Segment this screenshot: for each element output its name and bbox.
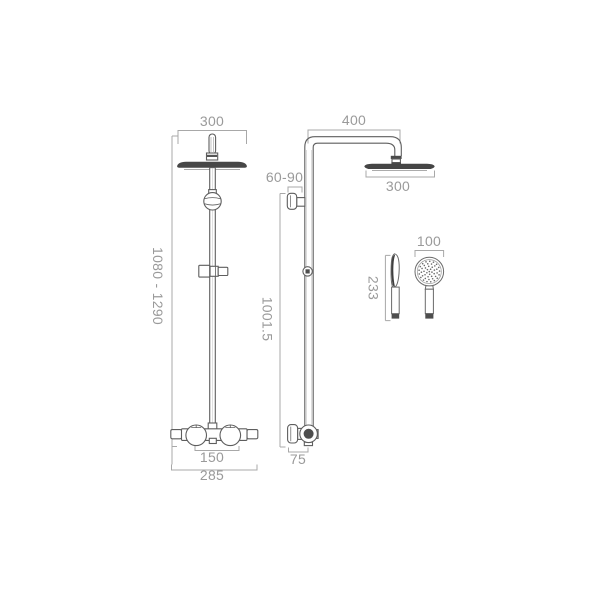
dim-label-side-riser-height: 1001.5 — [260, 294, 276, 345]
front-top-knob — [209, 134, 216, 154]
front-shower-head — [177, 162, 246, 167]
dim-label-side-wall-offset: 60-90 — [260, 169, 309, 185]
front-ball-joint — [204, 193, 221, 210]
handset-detail — [391, 254, 444, 319]
dim-side-wall-offset-bracket — [288, 187, 302, 193]
front-valve — [171, 423, 258, 446]
dim-label-side-valve-projection: 75 — [283, 451, 313, 467]
dim-label-side-head-diameter: 300 — [378, 178, 418, 194]
dim-label-handset-length: 233 — [366, 268, 382, 309]
dim-label-front-head-width: 300 — [192, 113, 232, 129]
dim-label-front-valve-width: 285 — [192, 467, 232, 483]
side-slider-knob — [303, 267, 312, 276]
side-valve — [288, 425, 319, 446]
handset-front-handle — [425, 289, 433, 313]
handset-front-view — [415, 257, 444, 318]
front-left-handle — [186, 425, 207, 446]
dim-label-front-handle-centres: 150 — [192, 449, 232, 465]
front-view — [171, 134, 258, 446]
dim-handset-diameter-bracket — [415, 251, 444, 258]
technical-drawing-canvas: 300 1080 - 1290 150 285 400 60-90 300 10… — [0, 0, 600, 600]
handset-side-profile — [391, 254, 399, 319]
dim-label-front-height-range: 1080 - 1290 — [150, 243, 166, 329]
side-wall-bracket — [287, 193, 305, 209]
front-slider-bracket — [199, 265, 228, 277]
front-right-handle — [220, 425, 241, 446]
side-shower-head — [365, 164, 434, 168]
dim-label-side-arm-projection: 400 — [334, 112, 374, 128]
dim-label-handset-diameter: 100 — [409, 233, 449, 249]
handset-side-handle — [392, 287, 400, 314]
dim-side-head-bracket — [366, 171, 435, 178]
shower-line-art — [0, 0, 600, 600]
